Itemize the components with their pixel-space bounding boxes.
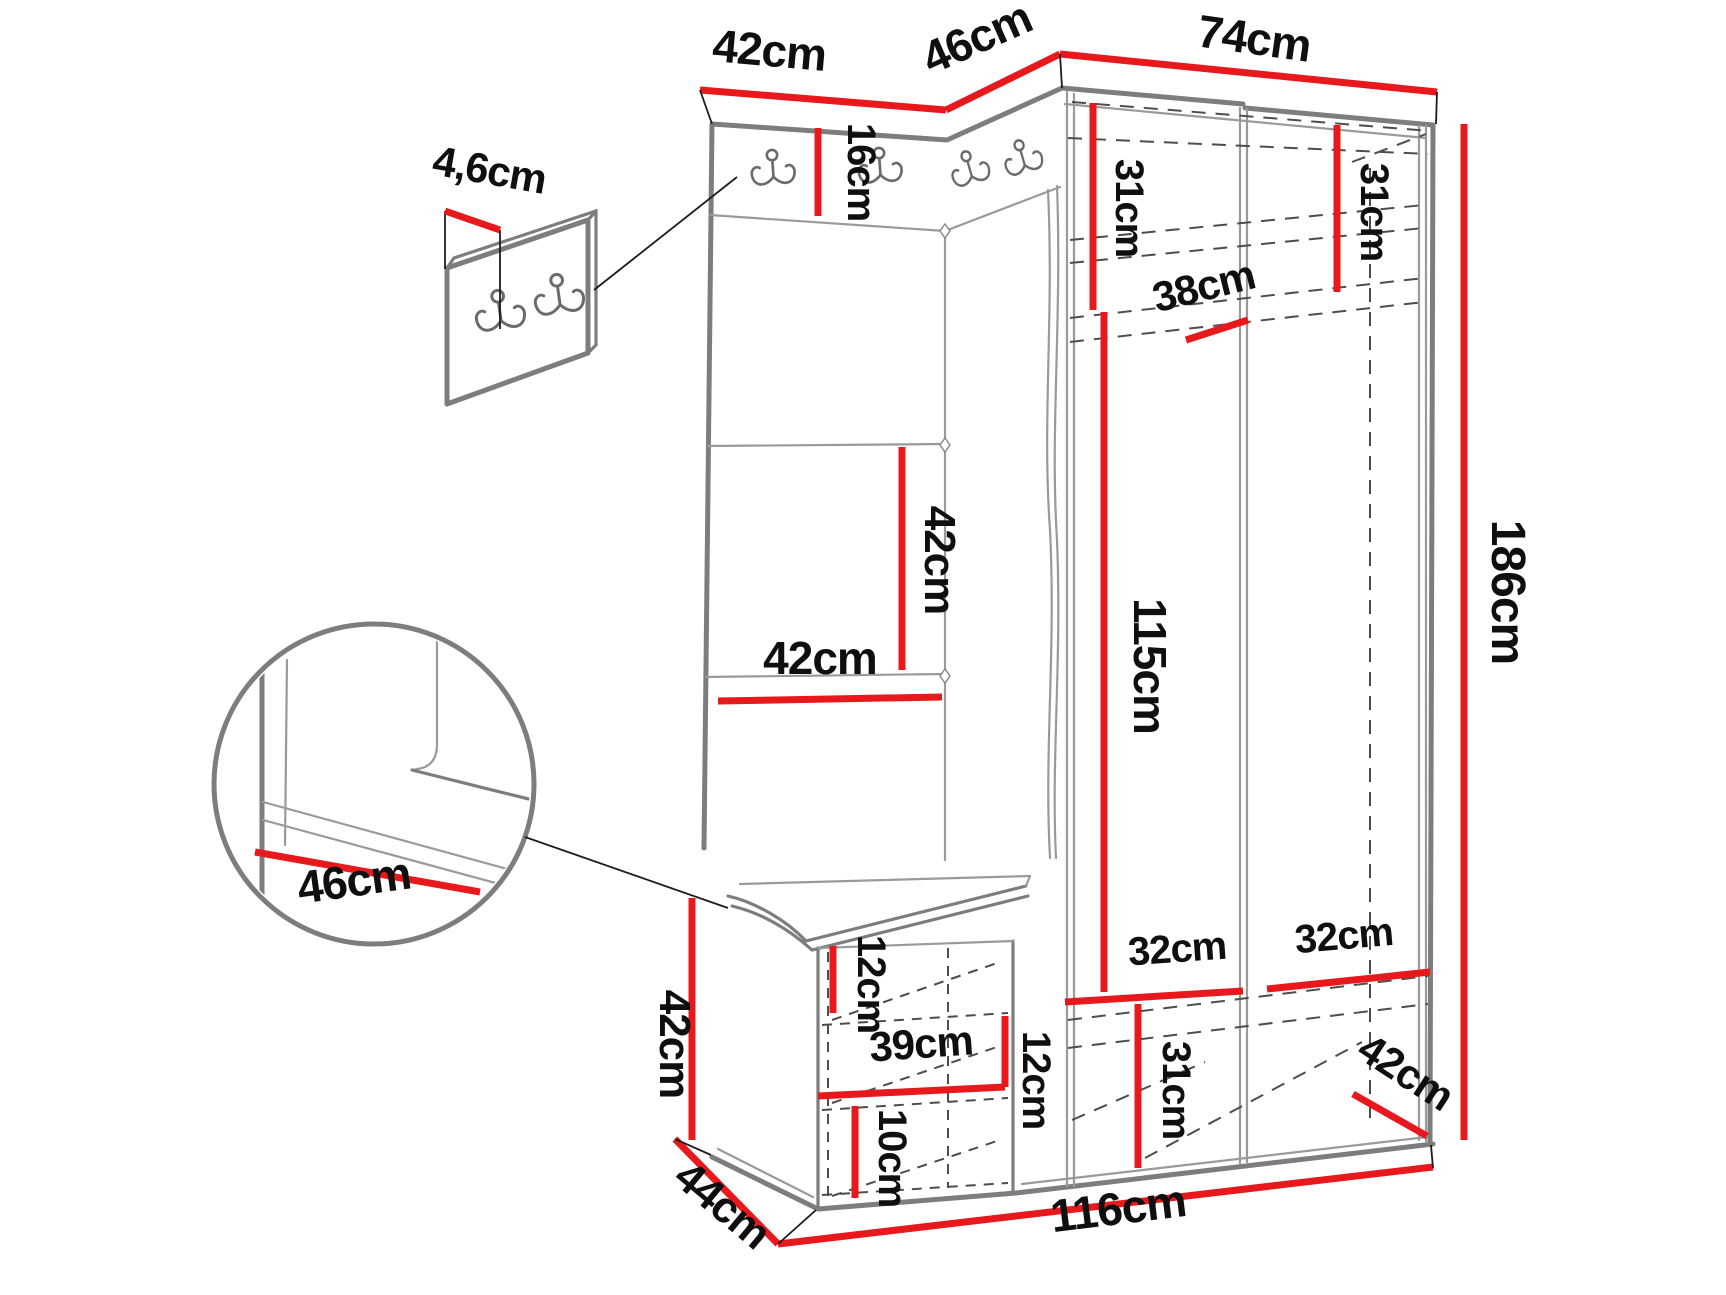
upholstery-seams [706, 224, 950, 860]
coat-hook-icon [532, 271, 585, 316]
dim-label-upper-shelf-depth: 38cm [1148, 251, 1260, 322]
hook-rail [750, 135, 1044, 187]
dim-line-upper-shelf-depth [1186, 320, 1248, 340]
extension-tick [1436, 92, 1437, 124]
upholstered-column-right-edge [1047, 190, 1052, 858]
dim-label-upper-shelf-right: 31cm [1352, 163, 1396, 261]
seat-end-edge [1026, 876, 1030, 886]
dim-label-top-width-right: 74cm [1194, 4, 1314, 71]
coat-hook-icon [750, 148, 795, 185]
panel-front-face [447, 220, 588, 404]
diagram-canvas: 42cm 46cm 74cm 4,6cm 16cm 31cm 31cm 38cm… [0, 0, 1726, 1295]
dim-label-bench-bottom-offset: 10cm [870, 1109, 914, 1207]
dim-line-bottom-shelf-right [1267, 972, 1430, 989]
left-edge [704, 124, 712, 848]
dim-label-bench-shelf-spacing: 12cm [1014, 1031, 1058, 1129]
extension-tick [1060, 54, 1062, 88]
dim-label-total-width: 116cm [1048, 1174, 1189, 1242]
coat-hook-icon [947, 146, 992, 187]
dim-line-top-width-left [700, 90, 946, 110]
dim-label-bench-inner-width: 39cm [868, 1016, 974, 1070]
seat-back-edge [740, 876, 1030, 884]
seat-back-edge-detail [412, 770, 545, 803]
extension-tick [700, 90, 712, 124]
detail-leader-line [594, 177, 737, 290]
tuft-diamond [940, 224, 950, 238]
bench-shelf-dashed-2 [822, 1098, 1008, 1110]
dim-label-seat-depth-detail: 46cm [294, 846, 414, 913]
dim-label-bench-depth: 44cm [665, 1151, 780, 1258]
hook-rail-bottom-seam [710, 187, 1060, 231]
corner-depth-dashed [1352, 134, 1426, 162]
top-edge-right [1245, 108, 1433, 125]
tuft-diamond [940, 438, 950, 452]
dim-label-panel-thickness: 4,6cm [429, 137, 550, 203]
dim-label-bench-top-offset: 12cm [849, 935, 893, 1033]
hook-panel-detail [445, 177, 737, 404]
dim-label-upper-shelf-left: 31cm [1107, 159, 1151, 257]
dim-line-bench-inner-width [818, 1087, 1005, 1096]
dim-label-door-height: 115cm [1124, 598, 1176, 734]
furniture-dimension-drawing: 42cm 46cm 74cm 4,6cm 16cm 31cm 31cm 38cm… [0, 0, 1726, 1295]
circle-leader-line [525, 837, 728, 908]
dimension-labels: 42cm 46cm 74cm 4,6cm 16cm 31cm 31cm 38cm… [294, 0, 1534, 1259]
dim-label-bottom-compartment: 31cm [1154, 1041, 1198, 1139]
panel-right-edge [412, 630, 437, 770]
quilt-seam-upper [708, 444, 945, 446]
dim-label-hook-rail-height: 16cm [839, 123, 883, 221]
dim-label-bottom-shelf-left: 32cm [1127, 924, 1228, 975]
panel-thickness-edges [447, 211, 596, 353]
panel-edge-thin [285, 660, 287, 845]
right-edge [1430, 125, 1433, 1142]
dim-label-bottom-shelf-right: 32cm [1293, 910, 1395, 962]
dim-label-top-width-left: 42cm [711, 19, 829, 81]
bench-corner-detail [214, 624, 728, 944]
dim-line-panel-tile-width [718, 697, 942, 701]
dim-label-panel-tile-height: 42cm [915, 506, 964, 615]
tuft-diamond [940, 669, 950, 683]
upholstered-column-right-edge-2 [1055, 186, 1059, 858]
coat-hook-icon [1000, 135, 1045, 176]
dim-label-bench-height: 42cm [650, 990, 699, 1099]
dim-line-bottom-shelf-left [1065, 991, 1243, 1002]
dim-label-panel-tile-width: 42cm [763, 632, 877, 684]
dim-label-total-height: 186cm [1481, 520, 1534, 664]
dim-line-panel-thickness [445, 211, 500, 230]
